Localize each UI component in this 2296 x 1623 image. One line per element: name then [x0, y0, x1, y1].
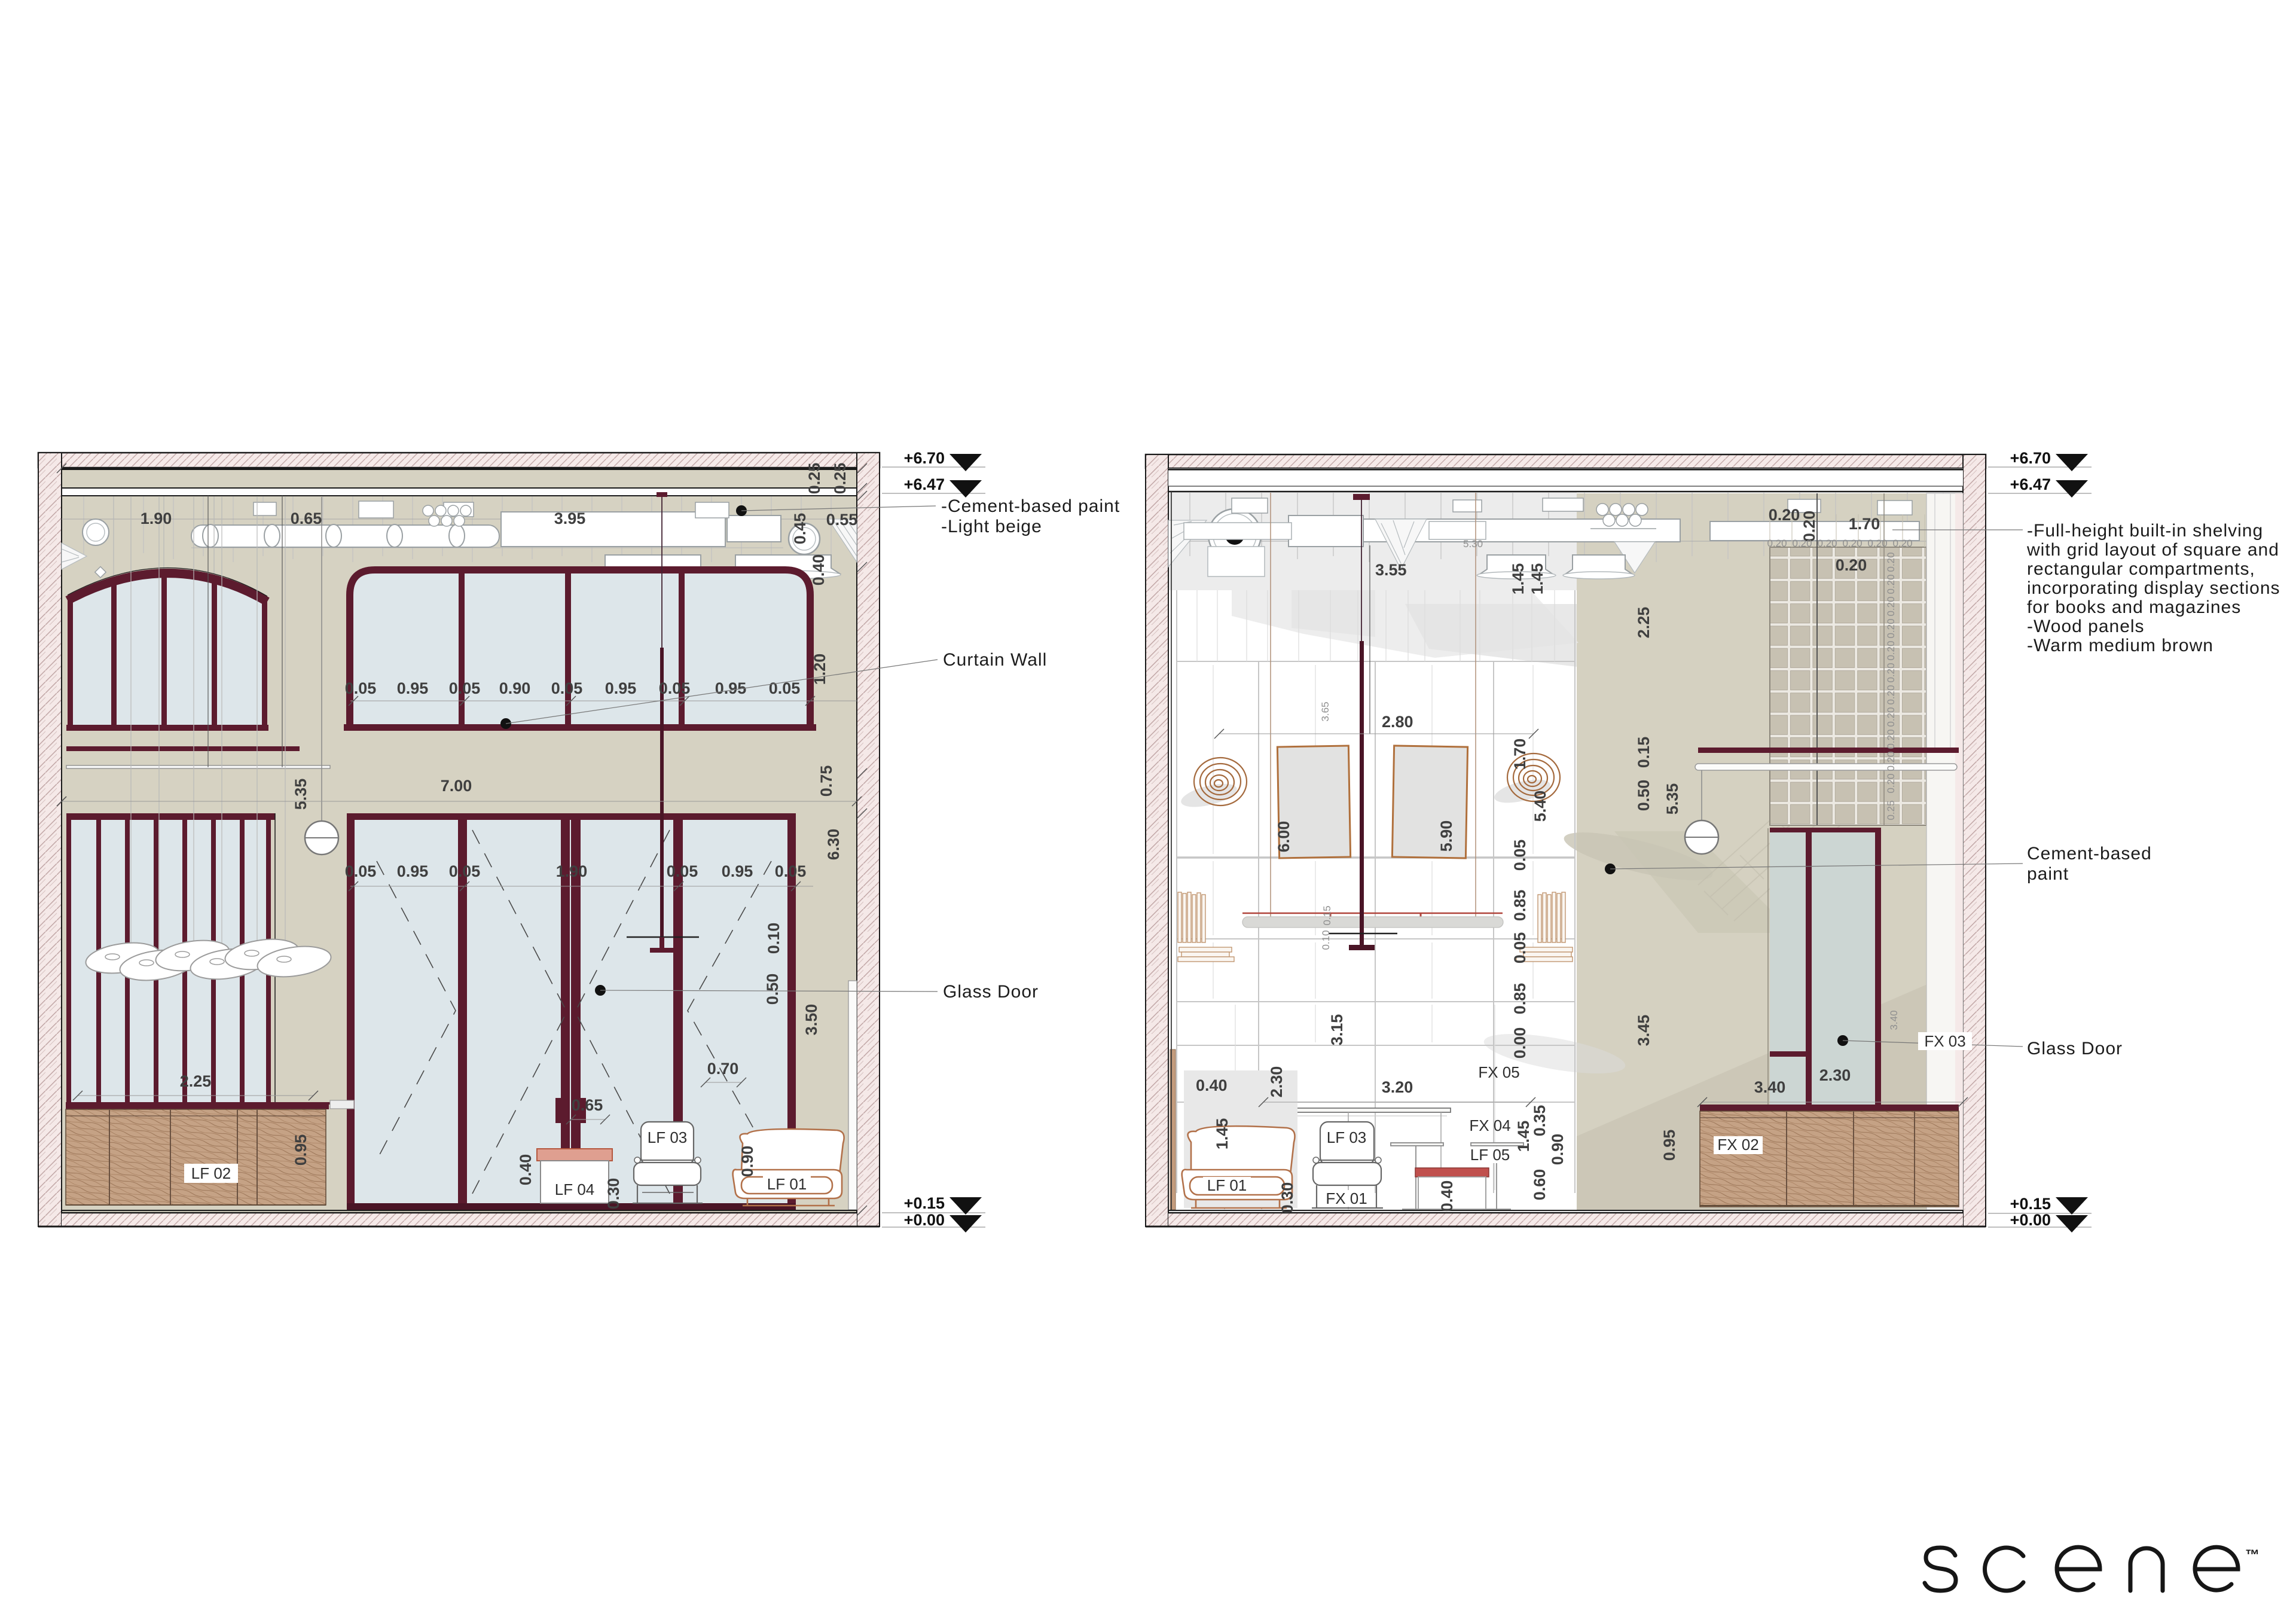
- svg-text:LF 03: LF 03: [1327, 1128, 1367, 1146]
- svg-text:LF 01: LF 01: [1207, 1176, 1247, 1194]
- svg-text:0.20: 0.20: [1885, 663, 1897, 682]
- svg-text:0.95: 0.95: [1660, 1130, 1678, 1161]
- svg-text:1.90: 1.90: [556, 862, 588, 880]
- svg-text:LF 04: LF 04: [555, 1180, 595, 1198]
- svg-text:rectangular compartments,: rectangular compartments,: [2027, 559, 2255, 579]
- svg-text:0.85: 0.85: [1511, 983, 1529, 1015]
- svg-text:0.25: 0.25: [1885, 800, 1897, 820]
- svg-text:2.30: 2.30: [1819, 1066, 1851, 1084]
- svg-text:3.55: 3.55: [1375, 561, 1407, 579]
- svg-text:Glass Door: Glass Door: [943, 982, 1039, 1002]
- svg-text:+0.00: +0.00: [2010, 1211, 2051, 1229]
- svg-text:3.40: 3.40: [1888, 1010, 1900, 1030]
- svg-text:0.20: 0.20: [1885, 751, 1897, 771]
- svg-text:0.20: 0.20: [1769, 506, 1800, 524]
- svg-text:0.05: 0.05: [449, 862, 481, 880]
- svg-text:0.20: 0.20: [1836, 556, 1867, 574]
- svg-text:-Wood panels: -Wood panels: [2027, 617, 2145, 636]
- svg-text:0.20: 0.20: [1892, 538, 1912, 549]
- svg-text:for books and magazines: for books and magazines: [2027, 597, 2241, 617]
- svg-text:2.30: 2.30: [1268, 1066, 1286, 1098]
- svg-text:LF 02: LF 02: [191, 1164, 231, 1182]
- svg-text:1.90: 1.90: [141, 510, 172, 527]
- svg-text:0.50: 0.50: [1635, 780, 1653, 811]
- svg-text:2.25: 2.25: [1635, 607, 1653, 639]
- svg-text:0.05: 0.05: [1511, 932, 1529, 964]
- svg-text:FX 02: FX 02: [1717, 1136, 1758, 1154]
- svg-text:2.25: 2.25: [180, 1072, 212, 1090]
- svg-text:0.35: 0.35: [1531, 1105, 1549, 1137]
- svg-text:+0.15: +0.15: [2010, 1195, 2051, 1213]
- svg-text:0.20: 0.20: [1792, 538, 1812, 549]
- svg-text:+6.70: +6.70: [2010, 449, 2051, 467]
- svg-text:0.05: 0.05: [775, 862, 807, 880]
- svg-text:0.20: 0.20: [1842, 538, 1862, 549]
- svg-text:7.00: 7.00: [441, 777, 472, 795]
- svg-text:paint: paint: [2027, 864, 2069, 884]
- svg-text:5.30: 5.30: [1463, 538, 1483, 550]
- svg-text:0.05: 0.05: [667, 862, 698, 880]
- svg-text:0.65: 0.65: [572, 1096, 603, 1114]
- svg-text:5.35: 5.35: [1663, 783, 1681, 815]
- svg-text:0.65: 0.65: [291, 510, 322, 527]
- svg-text:+0.00: +0.00: [904, 1211, 945, 1229]
- svg-text:Curtain Wall: Curtain Wall: [943, 650, 1047, 670]
- svg-text:-Full-height built-in shelving: -Full-height built-in shelving: [2027, 521, 2263, 541]
- svg-text:0.95: 0.95: [605, 679, 637, 697]
- svg-text:0.00: 0.00: [1511, 1027, 1529, 1059]
- svg-text:0.95: 0.95: [397, 862, 429, 880]
- svg-text:3.20: 3.20: [1382, 1078, 1413, 1096]
- svg-text:0.15: 0.15: [1635, 737, 1653, 768]
- svg-text:0.55: 0.55: [826, 511, 858, 529]
- svg-text:FX 03: FX 03: [1924, 1032, 1965, 1050]
- svg-text:1.70: 1.70: [1511, 739, 1529, 770]
- svg-text:+0.15: +0.15: [904, 1194, 945, 1212]
- svg-text:0.20: 0.20: [1885, 685, 1897, 704]
- svg-text:3.45: 3.45: [1635, 1015, 1653, 1047]
- svg-text:0.20: 0.20: [1885, 618, 1897, 638]
- svg-text:0.20: 0.20: [1817, 538, 1837, 549]
- svg-text:-Cement-based paint: -Cement-based paint: [941, 496, 1120, 516]
- svg-text:Glass Door: Glass Door: [2027, 1039, 2123, 1058]
- svg-text:0.05: 0.05: [1511, 840, 1529, 871]
- svg-text:1.45: 1.45: [1509, 563, 1527, 595]
- svg-text:5.40: 5.40: [1531, 791, 1549, 822]
- svg-text:0.40: 0.40: [1438, 1180, 1456, 1212]
- svg-text:0.05: 0.05: [449, 679, 481, 697]
- svg-text:-Light beige: -Light beige: [941, 517, 1042, 536]
- svg-text:3.65: 3.65: [1320, 701, 1331, 721]
- svg-text:0.20: 0.20: [1885, 773, 1897, 793]
- svg-text:1.45: 1.45: [1213, 1118, 1231, 1150]
- svg-text:2.80: 2.80: [1382, 713, 1413, 731]
- svg-text:0.20: 0.20: [1885, 729, 1897, 749]
- svg-text:0.90: 0.90: [738, 1146, 756, 1177]
- svg-text:FX 01: FX 01: [1326, 1189, 1367, 1207]
- svg-text:with grid layout of square and: with grid layout of square and: [2026, 540, 2279, 560]
- svg-text:3.15: 3.15: [1328, 1014, 1346, 1046]
- svg-text:0.25: 0.25: [805, 463, 823, 495]
- svg-text:0.70: 0.70: [707, 1060, 739, 1078]
- svg-text:LF 05: LF 05: [1470, 1146, 1510, 1164]
- svg-text:1.45: 1.45: [1515, 1121, 1532, 1152]
- svg-text:0.90: 0.90: [1549, 1134, 1567, 1166]
- svg-text:0.30: 0.30: [1278, 1182, 1296, 1214]
- svg-text:+6.47: +6.47: [2010, 475, 2051, 493]
- svg-text:0.30: 0.30: [604, 1178, 622, 1210]
- svg-text:1.20: 1.20: [811, 654, 829, 685]
- svg-text:0.95: 0.95: [292, 1134, 310, 1166]
- svg-text:0.20: 0.20: [1767, 538, 1787, 549]
- svg-text:0.05: 0.05: [345, 862, 377, 880]
- svg-text:3.95: 3.95: [554, 510, 586, 527]
- svg-text:FX 04: FX 04: [1469, 1116, 1510, 1134]
- svg-text:-Warm medium brown: -Warm medium brown: [2027, 636, 2213, 655]
- svg-text:1.70: 1.70: [1849, 515, 1880, 533]
- svg-text:0.05: 0.05: [551, 679, 583, 697]
- svg-text:0.20: 0.20: [1885, 640, 1897, 660]
- svg-text:0.15: 0.15: [1321, 905, 1333, 925]
- svg-text:0.85: 0.85: [1511, 890, 1529, 922]
- svg-text:0.60: 0.60: [1531, 1169, 1549, 1201]
- svg-text:0.05: 0.05: [659, 679, 691, 697]
- svg-text:0.05: 0.05: [345, 679, 377, 697]
- svg-text:™: ™: [2245, 1547, 2260, 1563]
- svg-text:+6.70: +6.70: [904, 449, 945, 467]
- svg-text:FX 05: FX 05: [1478, 1063, 1519, 1081]
- svg-text:Cement-based: Cement-based: [2027, 844, 2152, 864]
- svg-text:0.10: 0.10: [765, 923, 783, 954]
- svg-text:5.35: 5.35: [292, 779, 310, 810]
- svg-text:0.75: 0.75: [817, 765, 835, 797]
- svg-text:+6.47: +6.47: [904, 475, 945, 493]
- svg-text:0.95: 0.95: [397, 679, 429, 697]
- svg-text:0.20: 0.20: [1885, 574, 1897, 594]
- svg-text:0.40: 0.40: [810, 554, 828, 586]
- svg-text:0.10: 0.10: [1320, 930, 1332, 950]
- svg-text:6.00: 6.00: [1275, 821, 1293, 853]
- svg-text:0.50: 0.50: [764, 974, 781, 1005]
- svg-text:0.90: 0.90: [499, 679, 531, 697]
- svg-text:0.95: 0.95: [722, 862, 753, 880]
- svg-text:6.30: 6.30: [825, 829, 842, 861]
- svg-text:0.40: 0.40: [1196, 1076, 1228, 1094]
- svg-text:0.45: 0.45: [791, 513, 809, 545]
- svg-text:0.20: 0.20: [1885, 596, 1897, 616]
- svg-text:LF 03: LF 03: [648, 1128, 688, 1146]
- svg-text:5.90: 5.90: [1437, 820, 1455, 852]
- svg-text:incorporating display sections: incorporating display sections: [2027, 578, 2280, 598]
- svg-text:0.20: 0.20: [1885, 552, 1897, 572]
- svg-text:0.20: 0.20: [1867, 538, 1887, 549]
- svg-text:0.25: 0.25: [831, 463, 849, 495]
- svg-text:0.20: 0.20: [1885, 707, 1897, 727]
- svg-text:1.45: 1.45: [1528, 563, 1546, 595]
- svg-text:LF 01: LF 01: [767, 1175, 807, 1193]
- svg-text:3.50: 3.50: [802, 1004, 820, 1036]
- svg-text:3.40: 3.40: [1754, 1078, 1786, 1096]
- svg-text:0.40: 0.40: [517, 1154, 535, 1186]
